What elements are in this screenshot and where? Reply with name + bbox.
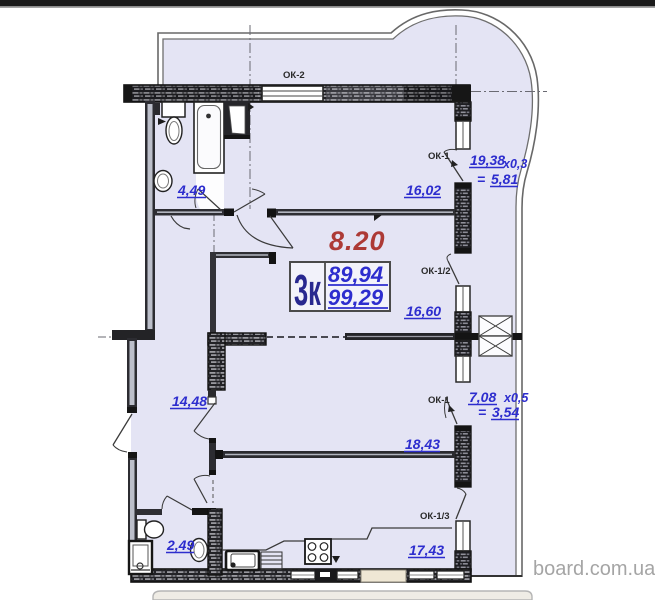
svg-text:17,43: 17,43 bbox=[409, 542, 444, 558]
svg-text:19,38: 19,38 bbox=[470, 152, 505, 168]
svg-text:ОК-1: ОК-1 bbox=[428, 151, 450, 162]
svg-text:х0,5: х0,5 bbox=[503, 391, 529, 405]
svg-text:16,02: 16,02 bbox=[406, 182, 441, 198]
svg-text:3,54: 3,54 bbox=[492, 404, 519, 420]
svg-text:ОК-1: ОК-1 bbox=[428, 395, 450, 406]
svg-text:ОК-1/2: ОК-1/2 bbox=[421, 266, 451, 277]
svg-text:ОК-2: ОК-2 bbox=[283, 70, 305, 81]
svg-text:7,08: 7,08 bbox=[469, 389, 496, 405]
svg-text:14,48: 14,48 bbox=[172, 393, 207, 409]
svg-text:5,81: 5,81 bbox=[491, 171, 518, 187]
svg-text:3к: 3к bbox=[294, 265, 322, 315]
svg-text:89,94: 89,94 bbox=[328, 262, 383, 287]
svg-text:8.20: 8.20 bbox=[329, 226, 386, 256]
svg-text:16,60: 16,60 bbox=[406, 303, 441, 319]
svg-text:18,43: 18,43 bbox=[405, 436, 440, 452]
svg-text:ОК-1/3: ОК-1/3 bbox=[420, 511, 450, 522]
svg-text:=: = bbox=[478, 404, 486, 420]
svg-text:4,49: 4,49 bbox=[177, 182, 205, 198]
svg-text:2,49: 2,49 bbox=[166, 537, 194, 553]
svg-text:=: = bbox=[477, 171, 485, 187]
svg-text:board.com.ua: board.com.ua bbox=[533, 558, 655, 580]
svg-text:х0,3: х0,3 bbox=[502, 157, 527, 171]
svg-text:99,29: 99,29 bbox=[328, 285, 384, 310]
